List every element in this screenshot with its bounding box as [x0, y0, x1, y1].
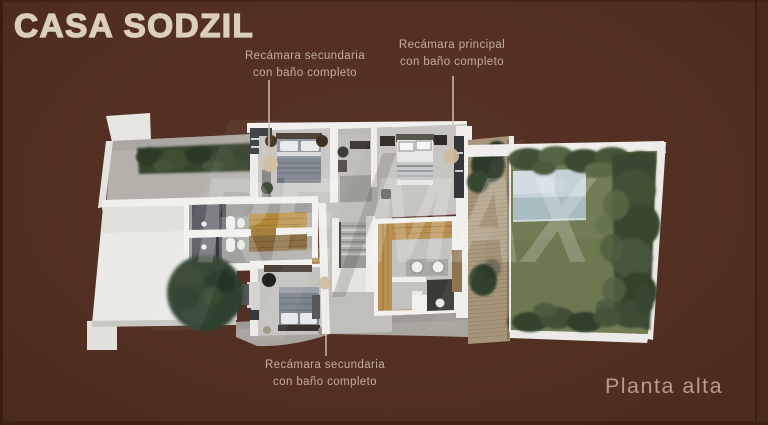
svg-text:®: ®	[552, 176, 566, 197]
svg-text:RE/MAX: RE/MAX	[196, 152, 598, 288]
